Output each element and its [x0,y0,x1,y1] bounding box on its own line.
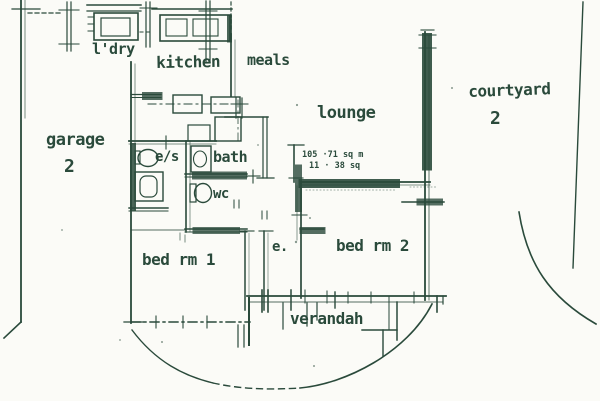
bed1-walls [131,298,250,347]
room-label-kitchen: kitchen [156,54,220,71]
bed2-walls [301,182,444,202]
ensuite-toilet-fixture [135,172,163,201]
wc-toilet-fixture [190,184,212,203]
room-label-entry: e. [272,240,288,254]
area-annotation-sqm: 105 ·71 sq m [302,151,363,160]
room-label-garage-number: 2 [64,158,74,176]
room-label-wc: wc [213,187,229,201]
door-swing-ticks [180,200,267,242]
room-label-garage: garage [46,132,104,149]
floorplan-drawing [0,0,600,401]
room-label-ldry: l'dry [92,42,135,57]
room-label-courtyard-number: 2 [490,110,500,128]
room-label-courtyard: courtyard [468,81,551,100]
room-label-lounge: lounge [317,105,375,122]
scan-specks [61,87,453,367]
bath-vanity-fixture [191,146,211,172]
floorplan-canvas: l'dry kitchen meals lounge courtyard 2 g… [0,0,600,401]
room-label-meals: meals [247,53,290,68]
room-label-verandah: verandah [290,311,363,327]
room-label-bath: bath [213,150,247,165]
room-label-ensuite: e/s [155,150,179,164]
room-label-bed2: bed rm 2 [336,238,409,254]
lounge-corner-wall [225,98,274,178]
house-right-wall [419,30,436,300]
area-annotation-squares: 11 · 38 sq [309,162,360,171]
kitchen-meals-divider-wall [231,2,238,140]
room-label-bed1: bed rm 1 [142,252,215,268]
